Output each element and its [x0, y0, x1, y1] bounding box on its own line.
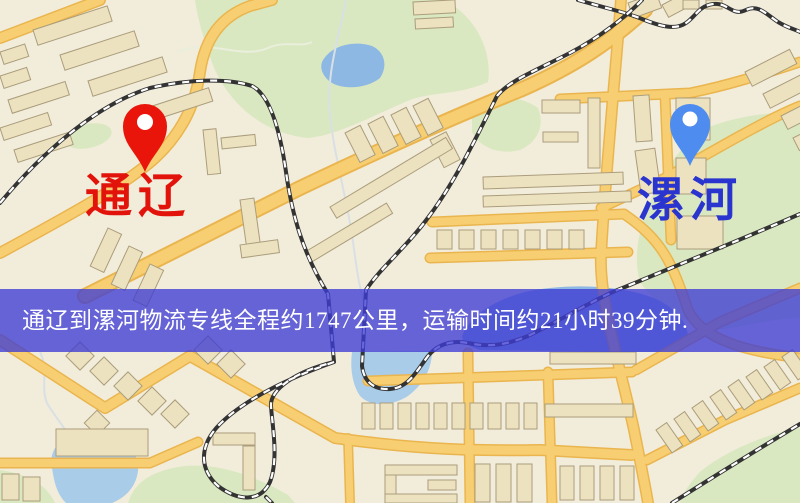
map-canvas	[0, 0, 800, 503]
route-info-text: 通辽到漯河物流专线全程约1747公里，运输时间约21小时39分钟.	[0, 289, 800, 352]
map[interactable]: 通辽 漯河 通辽到漯河物流专线全程约1747公里，运输时间约21小时39分钟.	[0, 0, 800, 503]
destination-city-label: 漯河	[637, 178, 743, 225]
route-info-banner: 通辽到漯河物流专线全程约1747公里，运输时间约21小时39分钟.	[0, 289, 800, 352]
origin-city-label: 通辽	[85, 174, 191, 221]
